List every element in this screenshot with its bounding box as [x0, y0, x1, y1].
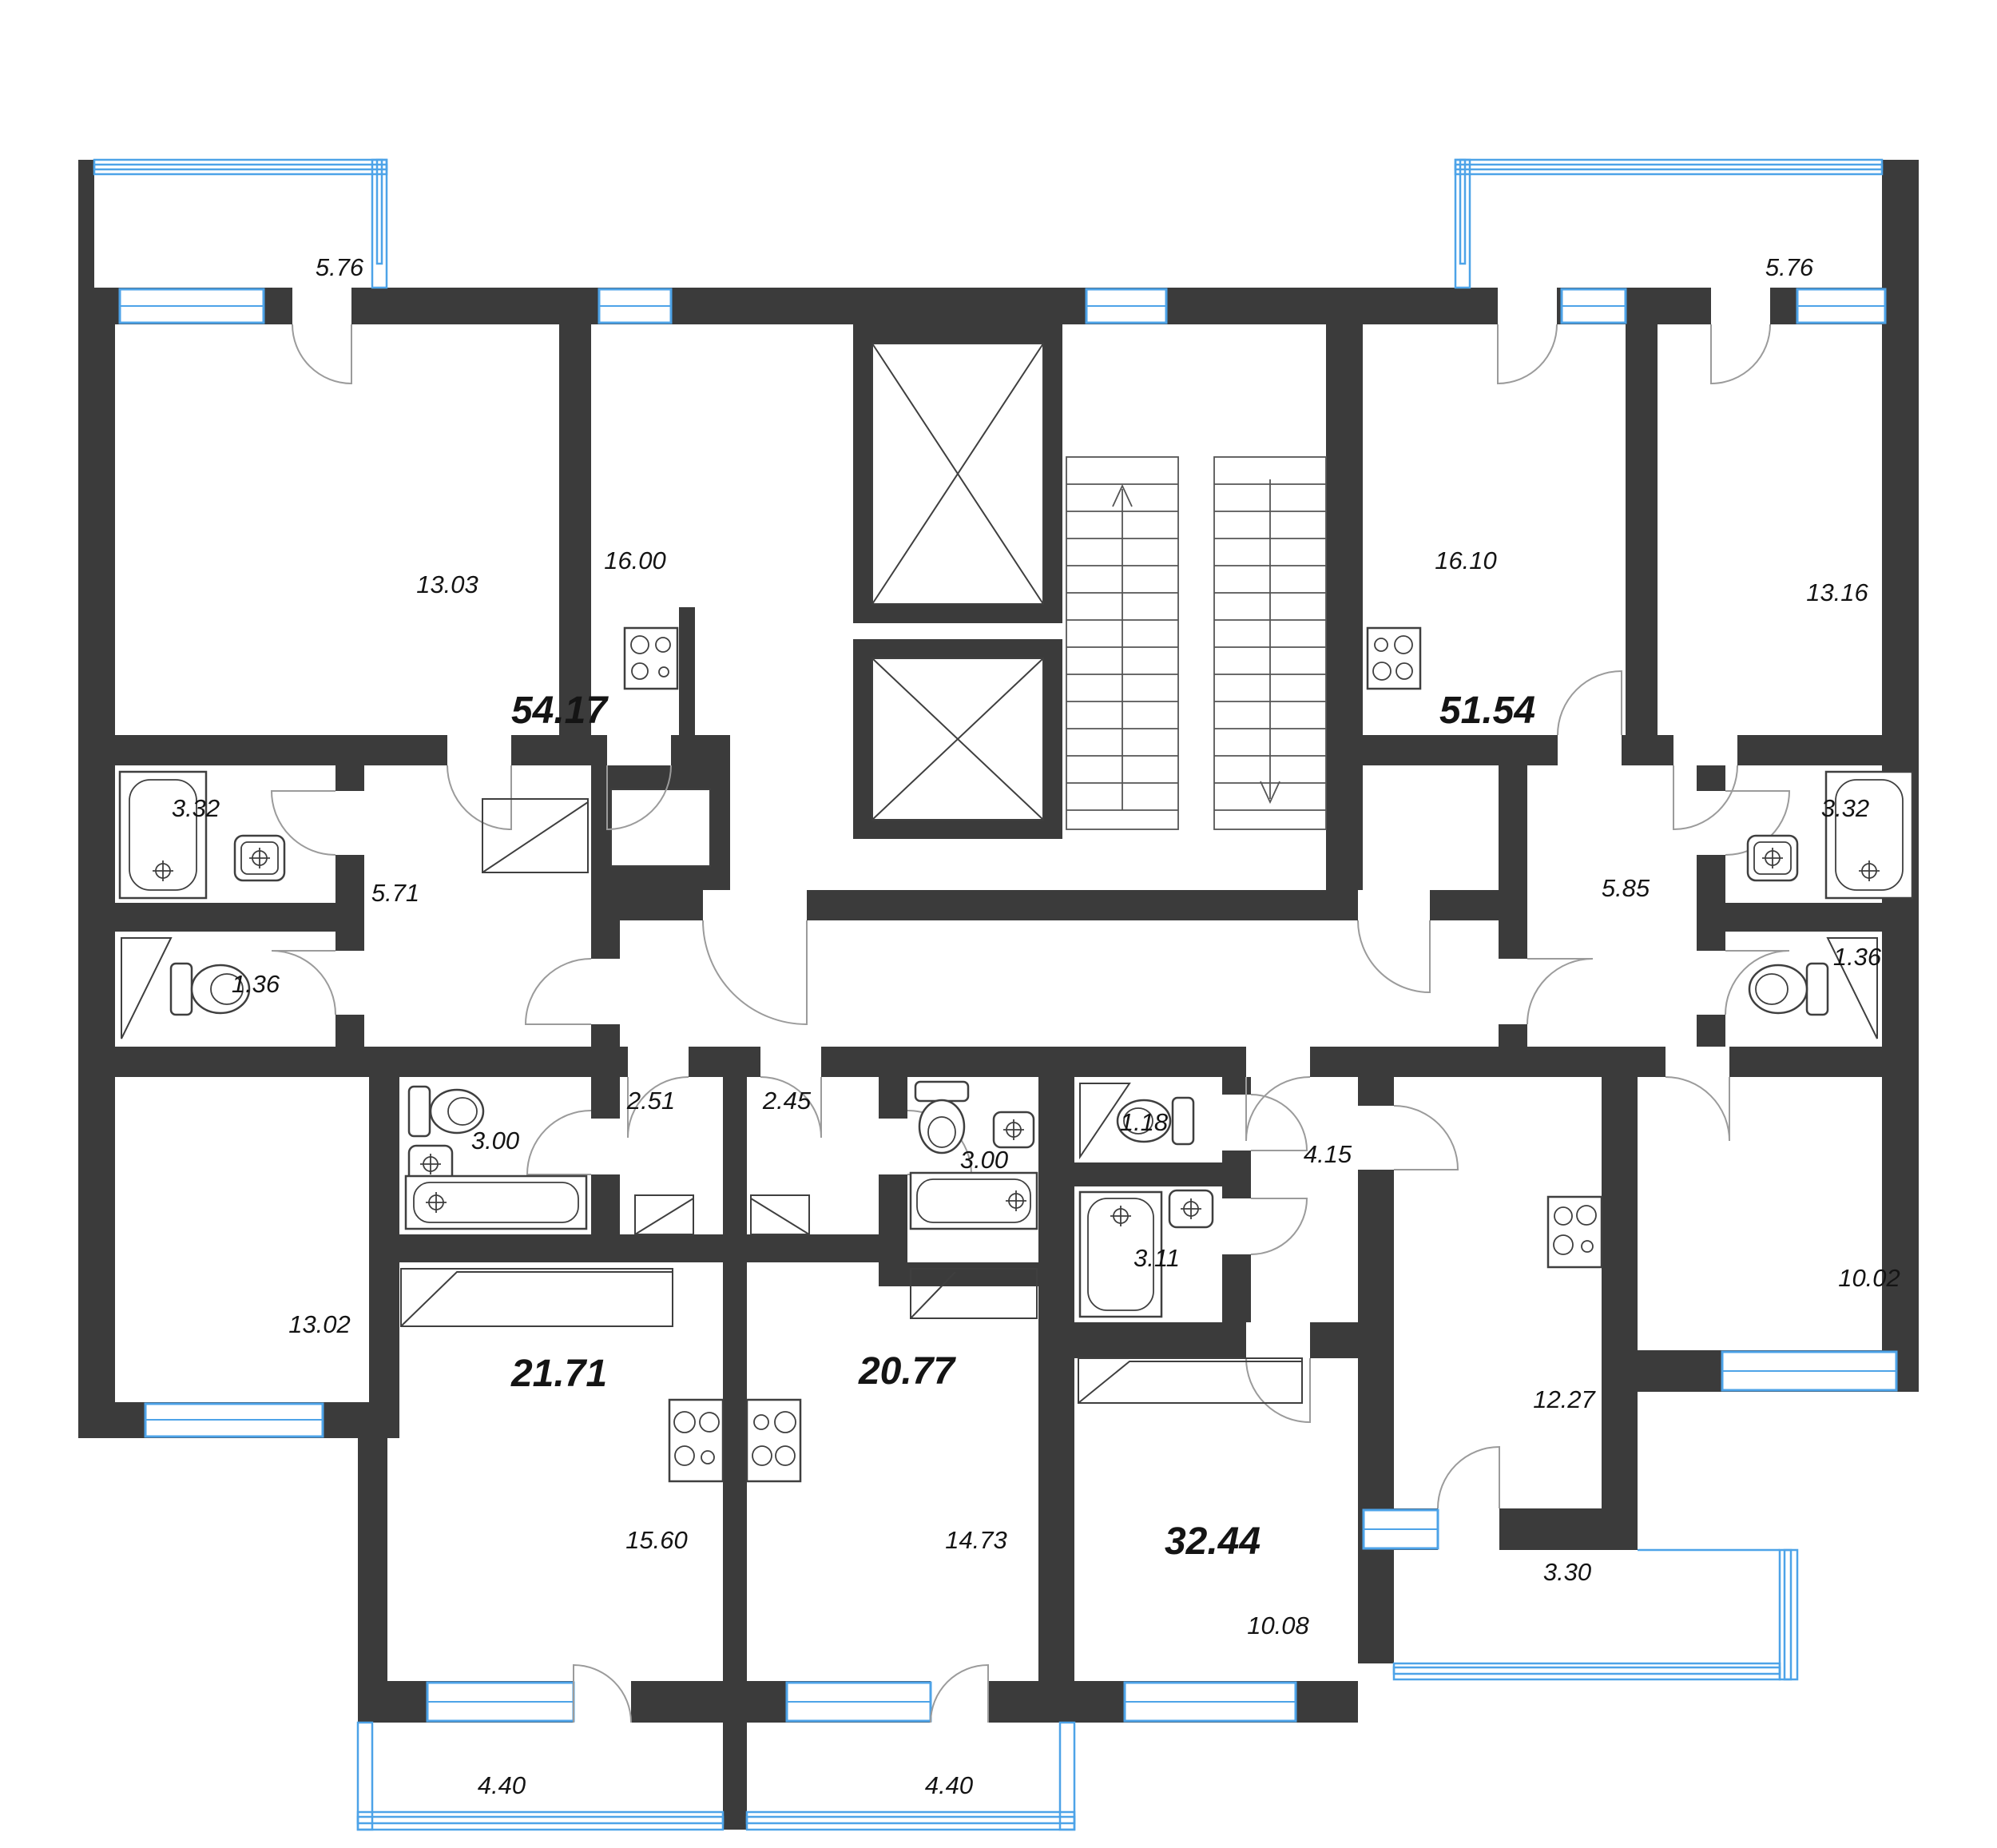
wardrobe-hall-2-45	[751, 1195, 809, 1234]
stove-54-17	[625, 628, 677, 689]
sink-studio-center	[994, 1112, 1034, 1147]
area-wc-1-18: 1.18	[1120, 1108, 1169, 1136]
window-room-15-60	[427, 1683, 574, 1721]
area-hall-2-45: 2.45	[762, 1087, 812, 1115]
sink-left	[235, 836, 284, 880]
area-bath-studio-center: 3.00	[960, 1146, 1008, 1174]
bathtub-studio-left	[406, 1176, 586, 1229]
window-room-10-02	[1722, 1352, 1896, 1390]
area-hall-5-71: 5.71	[371, 879, 419, 907]
area-kitchen-16-10: 16.10	[1435, 546, 1497, 574]
total-area-32-44: 32.44	[1165, 1520, 1261, 1563]
elevator-shafts	[853, 324, 1062, 839]
window-kitchen-12-27	[1364, 1510, 1438, 1548]
bathtub-left	[120, 772, 206, 898]
area-wc-right: 1.36	[1833, 943, 1882, 971]
area-balcony-4-40-left: 4.40	[478, 1771, 526, 1799]
stove-12-27	[1548, 1197, 1602, 1267]
area-balcony-3-30: 3.30	[1543, 1558, 1591, 1586]
area-kitchen-12-27: 12.27	[1533, 1385, 1596, 1413]
total-area-21-71: 21.71	[510, 1353, 607, 1395]
area-room-13-02: 13.02	[288, 1310, 351, 1338]
bathtub-studio-center	[911, 1173, 1037, 1229]
window-kitchen-16-00	[599, 289, 671, 323]
wardrobe-hall-2-51	[635, 1195, 693, 1234]
area-room-13-03: 13.03	[416, 570, 478, 598]
wardrobe-32-44	[1078, 1358, 1302, 1403]
window-kitchen-16-10	[1562, 289, 1626, 323]
sink-right	[1748, 836, 1797, 880]
area-room-15-60: 15.60	[625, 1526, 688, 1554]
toilet-studio-center	[915, 1082, 968, 1153]
total-area-20-77: 20.77	[858, 1350, 956, 1393]
stove-studio-center	[747, 1400, 800, 1481]
area-kitchen-16-00: 16.00	[604, 546, 666, 574]
area-wc-left: 1.36	[232, 970, 280, 998]
area-balcony-top-left: 5.76	[316, 253, 364, 281]
toilet-left	[121, 938, 249, 1039]
window-room-13-03	[120, 289, 264, 323]
staircase	[1066, 457, 1326, 829]
window-room-14-73	[787, 1683, 931, 1721]
area-hall-2-51: 2.51	[626, 1087, 675, 1115]
area-bath-left: 3.32	[172, 794, 220, 822]
area-bath-right: 3.32	[1821, 794, 1869, 822]
area-bath-3-11: 3.11	[1133, 1244, 1180, 1272]
balcony-bottom-left	[358, 1723, 723, 1830]
area-balcony-top-right: 5.76	[1765, 253, 1814, 281]
window-room-13-16	[1797, 289, 1885, 323]
floor-plan-drawing: 5.76 13.03 16.00 54.17 3.32 5.71 1.36 13…	[0, 0, 1997, 1848]
floor-plan: 5.76 13.03 16.00 54.17 3.32 5.71 1.36 13…	[0, 0, 1997, 1848]
bathtub-right	[1826, 772, 1912, 898]
area-room-14-73: 14.73	[945, 1526, 1007, 1554]
area-room-13-16: 13.16	[1806, 578, 1868, 606]
window-stairwell	[1086, 289, 1166, 323]
window-room-10-08	[1125, 1683, 1296, 1721]
stove-51-54	[1368, 628, 1420, 689]
area-room-10-08: 10.08	[1247, 1612, 1309, 1639]
area-room-10-02: 10.02	[1838, 1264, 1900, 1292]
balcony-bottom-right	[1394, 1550, 1797, 1679]
window-room-13-02	[145, 1404, 323, 1437]
wardrobe-studio-left	[401, 1269, 673, 1326]
total-area-54-17: 54.17	[511, 690, 609, 732]
sink-3-11	[1169, 1190, 1213, 1227]
wardrobe-hall-5-71	[482, 799, 588, 872]
area-bath-studio-left: 3.00	[471, 1127, 519, 1155]
balcony-top-right	[1455, 160, 1882, 288]
area-hall-5-85: 5.85	[1602, 874, 1650, 902]
balcony-bottom-center	[747, 1723, 1074, 1830]
stove-studio-left	[669, 1400, 723, 1481]
area-balcony-4-40-right: 4.40	[925, 1771, 973, 1799]
area-hall-4-15: 4.15	[1304, 1140, 1352, 1168]
total-area-51-54: 51.54	[1439, 690, 1535, 732]
